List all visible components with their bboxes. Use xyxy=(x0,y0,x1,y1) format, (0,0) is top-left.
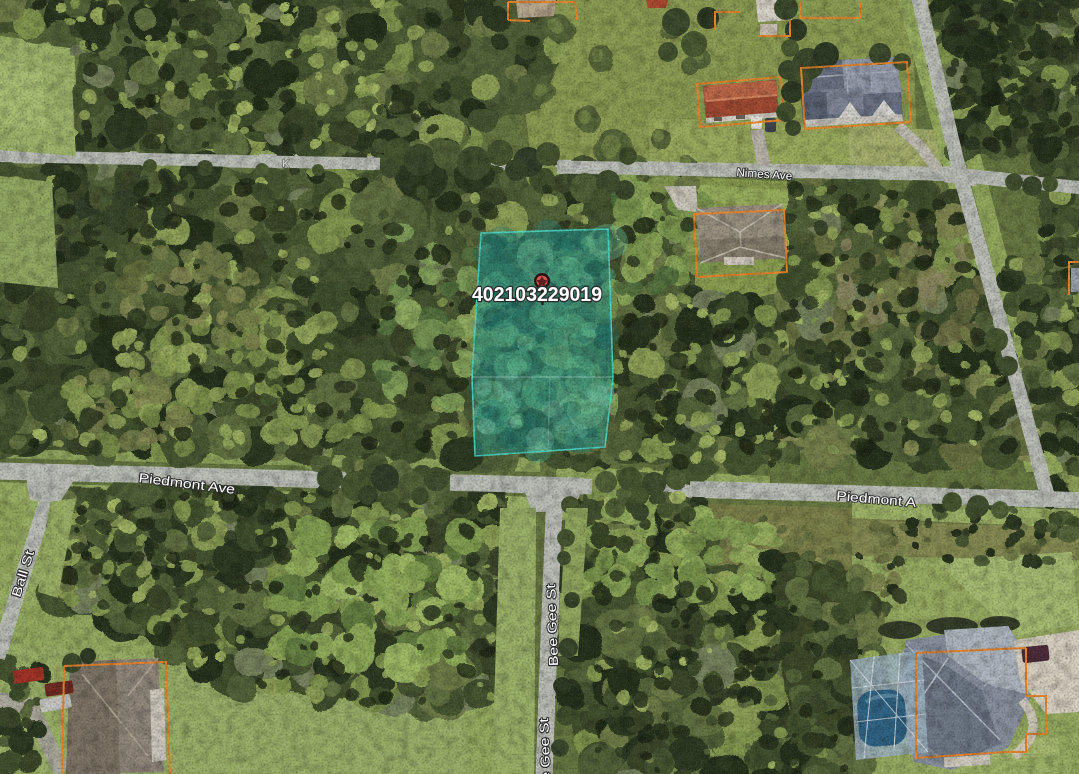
svg-text:Bee Gee St: Bee Gee St xyxy=(543,583,561,666)
svg-text:402103229019: 402103229019 xyxy=(472,282,602,305)
svg-text:Bee Gee St: Bee Gee St xyxy=(536,717,554,774)
svg-text:K: K xyxy=(282,157,291,169)
